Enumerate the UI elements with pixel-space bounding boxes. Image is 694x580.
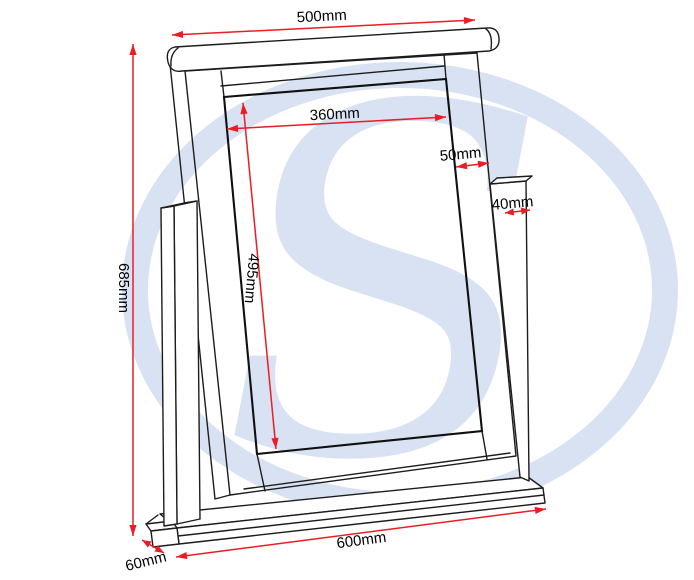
dimension-label-base_depth: 60mm — [124, 548, 169, 575]
diagram-canvas: S — [0, 0, 694, 580]
dimension-label-overall_height: 685mm — [115, 263, 132, 313]
left-post — [161, 201, 200, 526]
watermark-logo: S — [135, 7, 665, 566]
left-post-side-face — [174, 201, 200, 524]
mirror-dimension-diagram: S — [0, 0, 694, 580]
dimension-label-glass_width: 360mm — [309, 105, 360, 125]
dimension-label-frame_side_width: 50mm — [439, 144, 482, 165]
dimension-label-rail_width: 500mm — [296, 7, 347, 27]
left-post-front-face — [161, 206, 177, 526]
dimension-label-post_width: 40mm — [491, 193, 534, 214]
arrowhead-icon — [176, 552, 187, 559]
arrowhead-icon — [129, 525, 136, 536]
base-left-cap-front — [151, 528, 179, 547]
dimension-overall_height: 685mm — [115, 44, 137, 536]
arrowhead-icon — [129, 44, 136, 55]
arrowhead-icon — [172, 31, 183, 38]
arrowhead-icon — [142, 540, 152, 548]
